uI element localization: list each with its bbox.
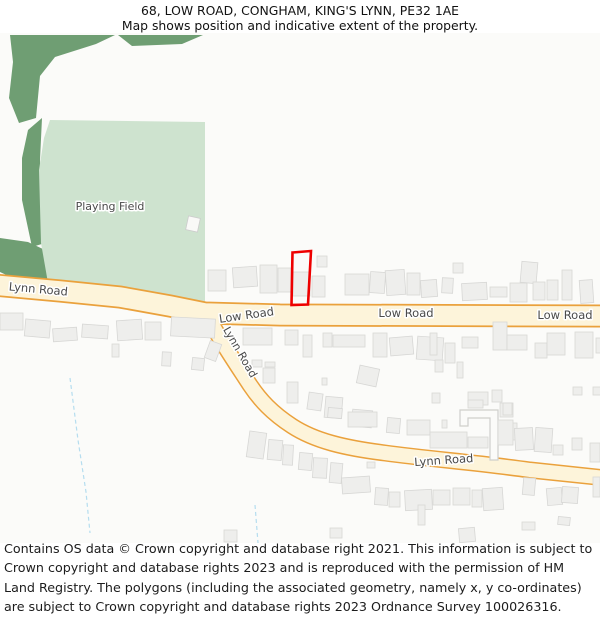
building — [462, 282, 488, 300]
building — [246, 431, 266, 459]
road-label-low-road: Low Road — [537, 308, 592, 322]
building — [432, 393, 440, 403]
building — [345, 274, 369, 295]
building — [278, 268, 291, 292]
building — [407, 420, 430, 435]
building — [0, 313, 23, 330]
building — [418, 505, 425, 525]
building — [312, 276, 325, 297]
report-header: 68, LOW ROAD, CONGHAM, KING'S LYNN, PE32… — [0, 0, 600, 33]
building — [535, 343, 547, 358]
building — [341, 476, 370, 494]
building — [562, 270, 572, 300]
building — [462, 337, 478, 348]
building — [267, 439, 283, 460]
building — [553, 445, 563, 455]
building — [514, 428, 533, 451]
map-svg: Playing FieldLynn RoadLow RoadLow RoadLo… — [0, 33, 600, 543]
building — [367, 462, 375, 468]
building — [522, 478, 535, 496]
building — [533, 282, 545, 300]
building — [482, 487, 503, 510]
building — [472, 490, 482, 507]
road-label-playing-field: Playing Field — [76, 200, 145, 213]
building — [307, 392, 323, 411]
building — [492, 390, 502, 402]
building — [457, 362, 463, 378]
building — [547, 280, 558, 300]
building — [590, 443, 600, 462]
building — [442, 420, 447, 428]
building — [547, 333, 565, 355]
building — [453, 488, 470, 505]
building — [322, 378, 327, 385]
building — [265, 362, 275, 367]
building — [232, 266, 257, 288]
building — [575, 332, 593, 358]
building — [263, 368, 275, 383]
building — [520, 261, 538, 283]
building — [561, 486, 578, 503]
building — [373, 333, 387, 357]
building — [171, 317, 216, 338]
building — [579, 280, 594, 304]
building — [498, 420, 513, 445]
building — [323, 333, 332, 347]
copyright-notice: Contains OS data © Crown copyright and d… — [4, 539, 598, 617]
building — [329, 463, 343, 484]
building — [593, 387, 600, 395]
building — [445, 343, 455, 363]
building — [435, 360, 443, 372]
building — [317, 256, 327, 267]
building — [82, 324, 109, 339]
building — [282, 445, 293, 465]
building — [186, 216, 201, 232]
building — [442, 278, 454, 294]
building — [287, 382, 298, 403]
building — [260, 265, 277, 293]
building — [330, 528, 342, 538]
building — [596, 338, 600, 353]
building — [285, 330, 298, 345]
building — [303, 335, 312, 357]
building — [145, 322, 161, 340]
building — [468, 437, 488, 448]
building — [430, 333, 437, 355]
building — [534, 427, 553, 452]
building — [208, 270, 226, 291]
property-address-title: 68, LOW ROAD, CONGHAM, KING'S LYNN, PE32… — [0, 3, 600, 18]
building — [389, 336, 413, 356]
building — [191, 357, 204, 370]
building — [243, 328, 272, 345]
building — [116, 319, 142, 341]
building — [546, 487, 562, 505]
building — [522, 522, 535, 530]
building — [374, 488, 388, 506]
building — [573, 387, 582, 395]
building — [468, 400, 483, 408]
building — [356, 365, 379, 387]
building — [386, 417, 400, 433]
building — [328, 407, 343, 418]
building — [53, 327, 78, 342]
building — [493, 322, 507, 350]
building — [510, 283, 527, 302]
building — [312, 458, 327, 479]
building — [453, 263, 463, 273]
building — [24, 319, 50, 338]
building — [503, 403, 512, 415]
building — [490, 287, 507, 297]
building — [112, 344, 119, 357]
map: Playing FieldLynn RoadLow RoadLow RoadLo… — [0, 33, 600, 543]
map-description-subtitle: Map shows position and indicative extent… — [0, 18, 600, 33]
building — [333, 335, 365, 347]
building — [298, 452, 312, 470]
building — [389, 492, 400, 507]
building — [507, 335, 527, 350]
building — [369, 272, 385, 294]
building — [348, 412, 377, 427]
building — [430, 432, 467, 448]
building — [433, 490, 450, 505]
building — [593, 477, 600, 497]
road-label-low-road: Low Road — [378, 306, 433, 320]
building — [558, 516, 571, 525]
building — [385, 269, 406, 295]
building — [162, 352, 172, 366]
building — [407, 273, 420, 295]
building — [572, 438, 582, 450]
building — [420, 279, 437, 297]
